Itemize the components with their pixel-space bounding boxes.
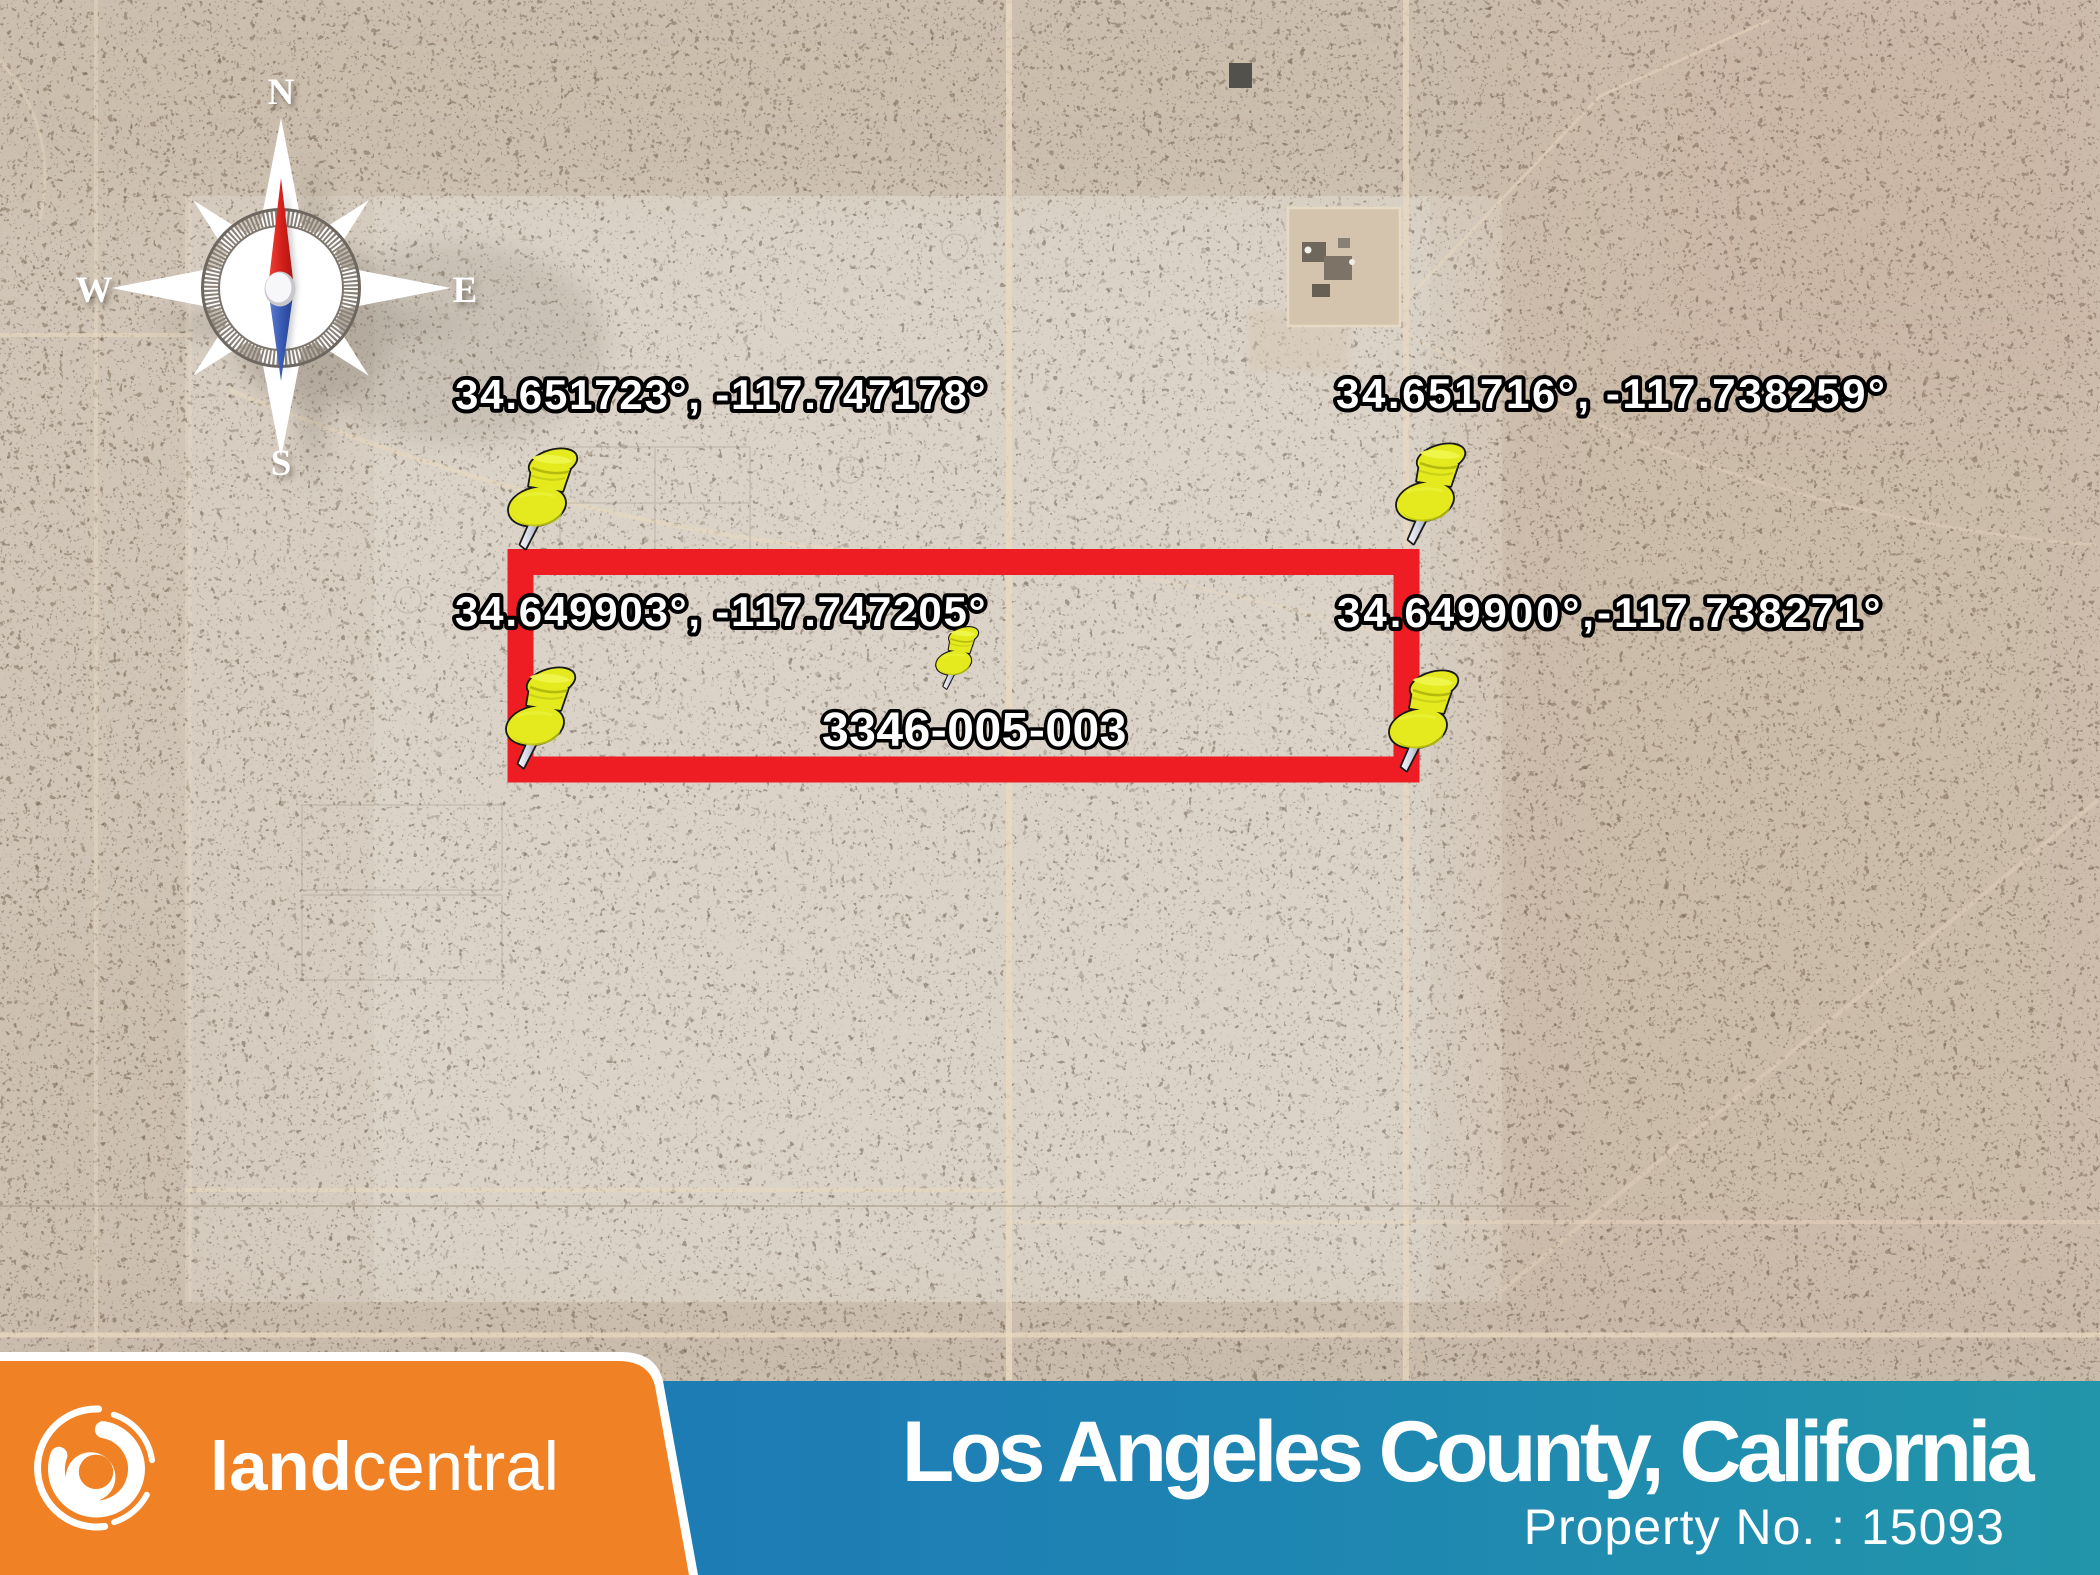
svg-text:Property No. : 15093: Property No. : 15093: [1524, 1499, 2005, 1555]
svg-text:N: N: [268, 72, 295, 113]
svg-text:3346-005-003: 3346-005-003: [822, 704, 1127, 757]
svg-text:34.651723°, -117.747178°: 34.651723°, -117.747178°: [455, 371, 987, 418]
svg-text:E: E: [453, 270, 478, 311]
svg-text:34.649903°, -117.747205°: 34.649903°, -117.747205°: [455, 588, 987, 635]
svg-text:S: S: [271, 443, 292, 484]
svg-text:landcentral: landcentral: [210, 1428, 559, 1505]
svg-text:34.651716°, -117.738259°: 34.651716°, -117.738259°: [1336, 370, 1887, 417]
svg-text:W: W: [76, 270, 113, 311]
svg-text:34.649900°,-117.738271°: 34.649900°,-117.738271°: [1337, 589, 1883, 636]
svg-text:Los Angeles County, California: Los Angeles County, California: [902, 1404, 2036, 1500]
